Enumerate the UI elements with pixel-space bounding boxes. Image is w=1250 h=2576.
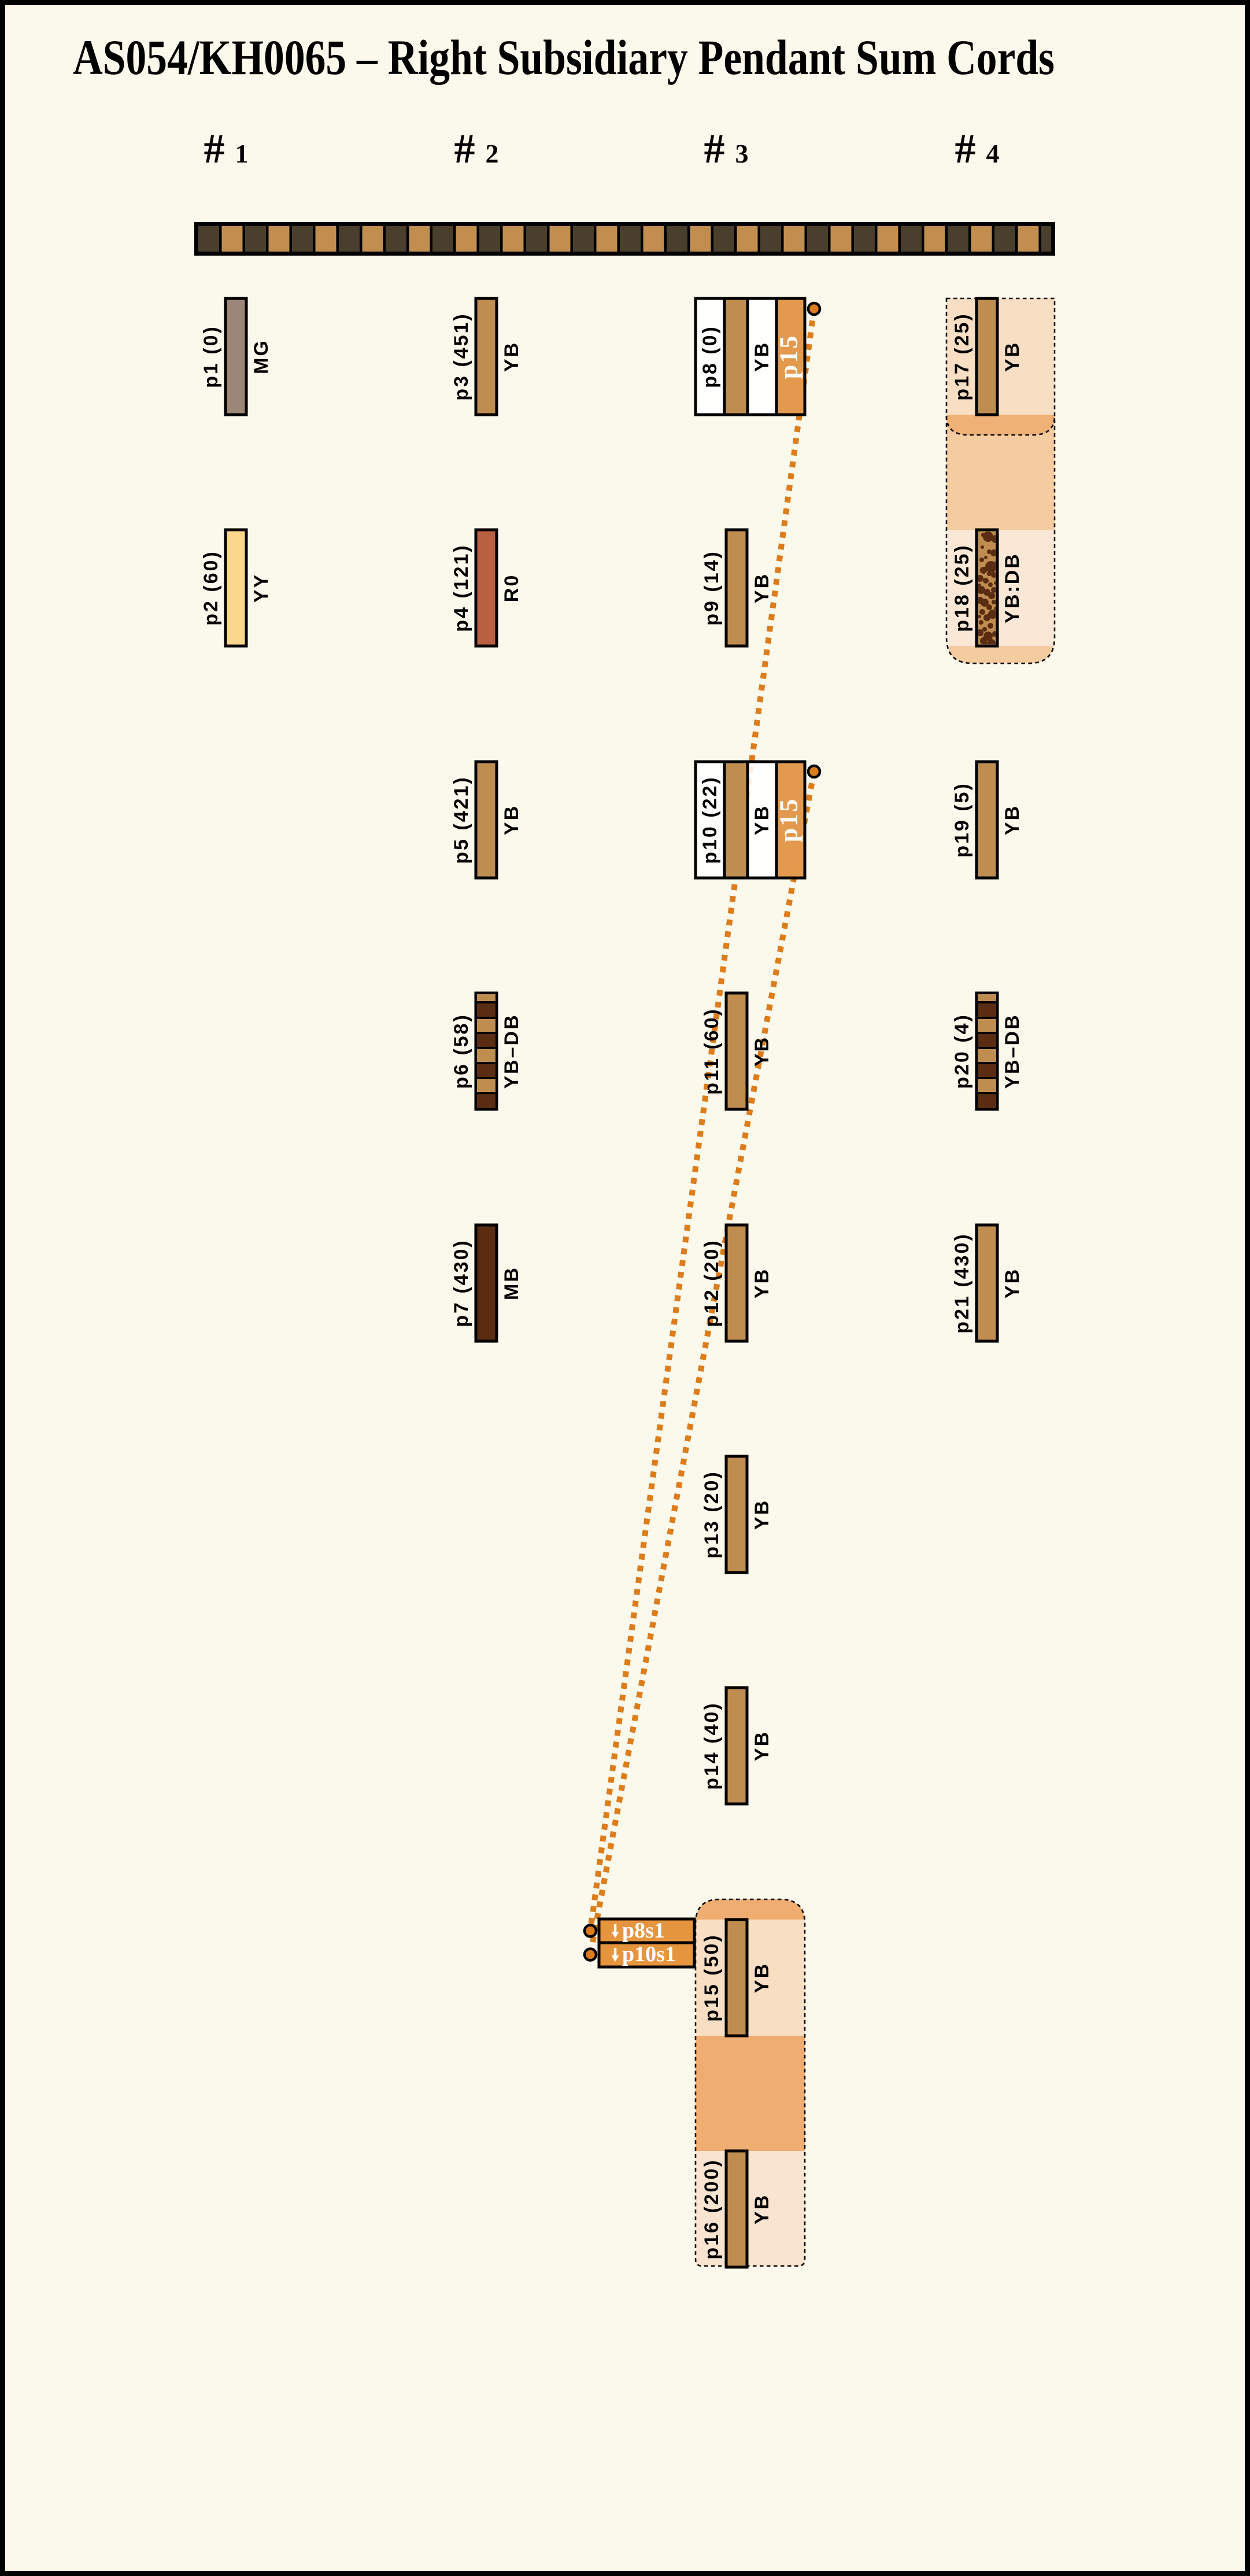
svg-text:MG: MG bbox=[250, 339, 272, 374]
svg-text:p1 (0): p1 (0) bbox=[200, 325, 222, 388]
svg-text:YB: YB bbox=[501, 804, 523, 835]
svg-text:YB: YB bbox=[751, 573, 773, 603]
svg-text:p15: p15 bbox=[775, 334, 803, 379]
svg-text:p5 (421): p5 (421) bbox=[450, 776, 472, 864]
svg-text:YY: YY bbox=[250, 573, 272, 603]
svg-text:YB: YB bbox=[1001, 1268, 1023, 1298]
svg-text:R0: R0 bbox=[501, 574, 523, 602]
svg-text:p8 (0): p8 (0) bbox=[699, 325, 721, 388]
svg-text:p11 (60): p11 (60) bbox=[701, 1007, 723, 1095]
svg-text:p17 (25): p17 (25) bbox=[951, 312, 973, 401]
svg-text:p7 (430): p7 (430) bbox=[450, 1239, 472, 1327]
svg-text:YB: YB bbox=[751, 1499, 773, 1530]
svg-text:YB: YB bbox=[751, 2194, 773, 2224]
svg-text:p15: p15 bbox=[775, 798, 803, 842]
svg-text:p3 (451): p3 (451) bbox=[450, 312, 472, 401]
svg-text:p16 (200): p16 (200) bbox=[701, 2158, 723, 2259]
svg-text:YB:DB: YB:DB bbox=[1001, 552, 1023, 623]
svg-text:p21 (430): p21 (430) bbox=[951, 1232, 973, 1333]
svg-text:p19 (5): p19 (5) bbox=[951, 782, 973, 858]
svg-text:YB: YB bbox=[1001, 804, 1023, 835]
svg-text:YB–DB: YB–DB bbox=[1001, 1013, 1023, 1088]
svg-text:YB: YB bbox=[751, 1268, 773, 1298]
svg-text:p6 (58): p6 (58) bbox=[450, 1013, 472, 1089]
svg-text:p18 (25): p18 (25) bbox=[951, 544, 973, 632]
svg-text:YB: YB bbox=[751, 1730, 773, 1761]
svg-text:p8s1: p8s1 bbox=[622, 1918, 665, 1943]
svg-text:YB: YB bbox=[751, 804, 773, 835]
svg-text:p4 (121): p4 (121) bbox=[450, 544, 472, 632]
svg-text:YB: YB bbox=[501, 341, 523, 372]
svg-text:p14 (40): p14 (40) bbox=[701, 1702, 723, 1790]
svg-text:p15 (50): p15 (50) bbox=[701, 1933, 723, 2022]
svg-text:p10 (22): p10 (22) bbox=[699, 776, 721, 864]
svg-text:p9 (14): p9 (14) bbox=[701, 550, 723, 626]
svg-text:AS054/KH0065 – Right Subsidiar: AS054/KH0065 – Right Subsidiary Pendant … bbox=[73, 29, 1055, 85]
svg-text:p10s1: p10s1 bbox=[622, 1942, 676, 1966]
svg-text:YB: YB bbox=[751, 1036, 773, 1066]
svg-text:MB: MB bbox=[501, 1266, 523, 1300]
svg-text:p20 (4): p20 (4) bbox=[951, 1013, 973, 1089]
svg-text:p13 (20): p13 (20) bbox=[701, 1470, 723, 1559]
svg-text:YB: YB bbox=[751, 341, 773, 372]
svg-text:YB: YB bbox=[751, 1962, 773, 1993]
svg-text:p12 (20): p12 (20) bbox=[701, 1239, 723, 1327]
svg-text:YB–DB: YB–DB bbox=[501, 1013, 523, 1088]
svg-text:p2 (60): p2 (60) bbox=[200, 550, 222, 626]
svg-text:YB: YB bbox=[1001, 341, 1023, 372]
